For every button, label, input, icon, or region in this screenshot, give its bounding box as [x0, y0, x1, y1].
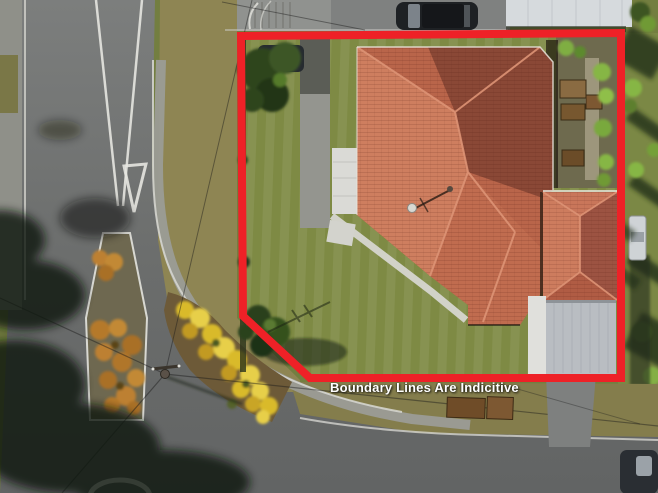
parked-suv [396, 2, 478, 30]
driveway [546, 374, 596, 447]
white-garage-roof [506, 0, 632, 27]
concrete-pad [225, 0, 331, 31]
bottom-right-car [620, 450, 658, 493]
aerial-property-photo: Boundary Lines Are Indicitive [0, 0, 658, 493]
secondary-roof [540, 190, 617, 300]
satellite-dish [408, 204, 417, 213]
top-strip [396, 0, 656, 32]
wood-shed [447, 395, 514, 419]
aerial-scene [0, 0, 658, 493]
boundary-disclaimer-text: Boundary Lines Are Indicitive [330, 380, 519, 395]
